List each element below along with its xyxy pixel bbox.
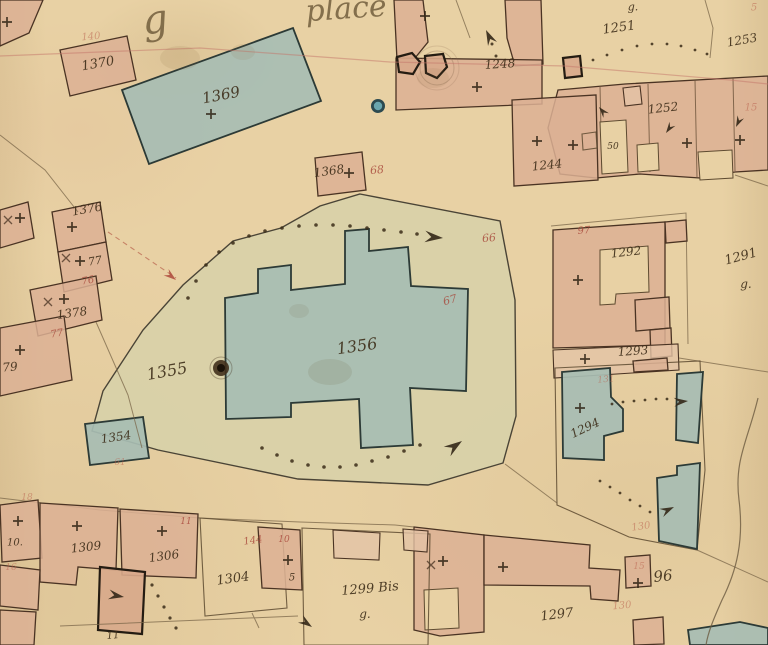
- path-dot: [609, 486, 612, 489]
- building-southeast-corner: [688, 622, 768, 645]
- path-dot: [156, 594, 159, 597]
- room-50: [600, 120, 628, 174]
- edge-building-b: [0, 610, 36, 645]
- path-dot: [622, 401, 625, 404]
- path-dot: [611, 403, 614, 406]
- path-dot: [418, 443, 422, 447]
- path-dot: [247, 234, 251, 238]
- parcel-1368-building: [315, 152, 366, 196]
- arrow-icon: [164, 269, 179, 283]
- measure-line: [60, 613, 298, 628]
- path-dot: [649, 511, 652, 514]
- path-dot: [168, 616, 171, 619]
- path-dot: [402, 449, 406, 453]
- pink-sliver-1294: [633, 358, 668, 372]
- path-dot: [666, 398, 669, 401]
- path-dot: [204, 263, 208, 267]
- courtyard-notch-a: [637, 143, 659, 172]
- parcel-1379-building: [0, 316, 72, 396]
- annex-1297-south: [633, 617, 664, 645]
- path-dot: [174, 626, 177, 629]
- cell-1299bis-north: [333, 530, 380, 560]
- stain: [417, 68, 449, 88]
- block-1294-group: [555, 358, 705, 550]
- path-dot: [338, 465, 342, 469]
- arrow-icon: [482, 28, 497, 46]
- block-1297-group: [414, 527, 664, 645]
- path-dot: [636, 45, 639, 48]
- path-dot: [162, 605, 165, 608]
- road-line-se: [697, 550, 768, 582]
- path-dot: [399, 230, 403, 234]
- path-dot: [186, 296, 190, 300]
- path-dot: [150, 583, 153, 586]
- boundary-line-east: [679, 358, 768, 372]
- path-dot: [386, 455, 390, 459]
- map-canvas: [0, 0, 768, 645]
- arrow-icon: [298, 615, 315, 630]
- path-dot: [194, 279, 198, 283]
- annex-1292-northeast: [665, 220, 687, 243]
- path-dot: [314, 223, 318, 227]
- annex-1294-east: [676, 372, 703, 443]
- path-dot: [621, 49, 624, 52]
- stain: [160, 46, 200, 70]
- well-dark-center: [217, 364, 225, 372]
- path-dot: [491, 43, 494, 46]
- parcel-1294-building: [562, 368, 623, 460]
- stain: [289, 304, 309, 318]
- street-edge-line: [456, 0, 470, 38]
- path-dot: [651, 43, 654, 46]
- road-line-ne: [705, 0, 713, 58]
- path-dot: [370, 459, 374, 463]
- path-dot: [633, 400, 636, 403]
- path-dot: [306, 463, 310, 467]
- road-line-nw: [0, 135, 78, 212]
- path-dot: [655, 398, 658, 401]
- strip-building-right: [505, 0, 543, 66]
- sliver-building-west: [0, 202, 34, 248]
- path-dot: [666, 43, 669, 46]
- path-dot: [217, 250, 221, 254]
- path-dot: [592, 59, 595, 62]
- block-southwest-group: [0, 498, 430, 645]
- stain: [231, 44, 255, 60]
- path-dot: [415, 232, 419, 236]
- red-dashed-sightline: [108, 232, 176, 278]
- stain: [308, 359, 352, 385]
- path-dot: [290, 459, 294, 463]
- path-dot: [606, 54, 609, 57]
- path-dot: [629, 499, 632, 502]
- stream-line: [706, 398, 758, 645]
- path-dot: [706, 53, 709, 56]
- boundary-line-1291: [735, 175, 768, 186]
- block-1292-group: [551, 213, 768, 378]
- well-blue-center: [374, 102, 382, 110]
- road-line-yard-south: [505, 464, 557, 503]
- parcel-10-building: [0, 500, 42, 562]
- path-dot: [348, 224, 352, 228]
- path-dot: [694, 49, 697, 52]
- courtyard-notch-b: [698, 150, 733, 180]
- path-dot: [275, 453, 279, 457]
- path-dot: [297, 224, 301, 228]
- path-dot: [644, 399, 647, 402]
- edge-building-a: [0, 565, 40, 610]
- parcel-1244-building: [512, 95, 598, 186]
- path-dot: [619, 492, 622, 495]
- parcel-1354-building: [85, 417, 149, 465]
- small-tan-square: [623, 86, 642, 106]
- parcel-1370-building: [60, 36, 136, 96]
- path-dot: [260, 446, 264, 450]
- parcel-1306-building: [120, 509, 198, 578]
- parcel-1297-building: [484, 535, 620, 601]
- path-dot: [639, 505, 642, 508]
- path-dot: [263, 229, 267, 233]
- path-dot: [331, 223, 335, 227]
- path-dot: [495, 55, 498, 58]
- path-dot: [680, 45, 683, 48]
- annex-1292-east: [635, 297, 670, 331]
- cadastral-map-sheet: gplace1370136913681355135613541376771378…: [0, 0, 768, 645]
- cell-between-1299-1297: [403, 529, 428, 552]
- block-1252-group: [512, 76, 768, 186]
- parcel-5-building: [258, 527, 302, 590]
- path-dot: [365, 226, 369, 230]
- parcel-1369-building: [122, 28, 321, 164]
- path-dot: [382, 228, 386, 232]
- path-dot: [354, 463, 358, 467]
- block-1376-group: [0, 202, 112, 396]
- path-dot: [231, 241, 235, 245]
- annex-1294-southeast: [657, 463, 700, 549]
- path-dot: [280, 226, 284, 230]
- path-dot: [322, 465, 326, 469]
- path-dot: [599, 480, 602, 483]
